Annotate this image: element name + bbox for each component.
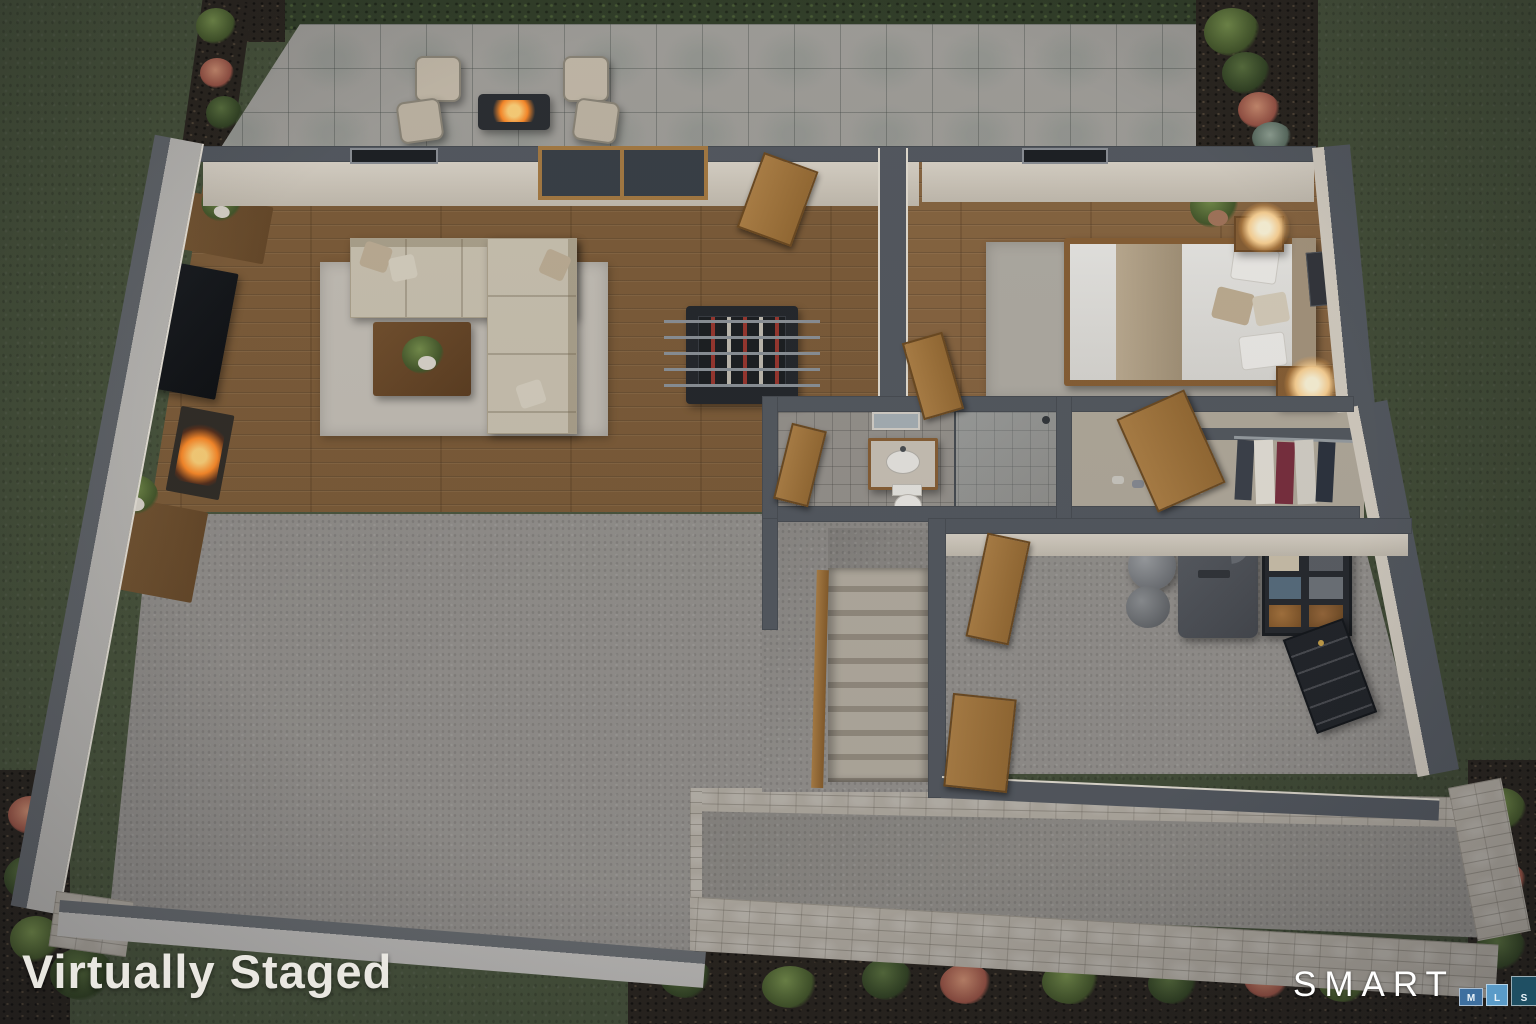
shrub [1222, 52, 1270, 94]
sliding-glass-door [538, 146, 708, 200]
logo-block-m: M [1459, 988, 1483, 1006]
watermark-text: Virtually Staged [22, 944, 392, 999]
patio-lounge-chair [571, 97, 620, 145]
foosball-table [686, 306, 798, 404]
smart-mls-logo: SMART M L S [1293, 962, 1529, 1008]
egress-window [350, 148, 438, 164]
fire-flame [489, 100, 539, 122]
basement-floorplan [50, 140, 1490, 985]
garment-charcoal [1234, 440, 1254, 501]
patio [196, 24, 1196, 152]
wall-north-face-bedroom [922, 162, 1314, 202]
garment-light [1294, 440, 1316, 505]
patio-lounge-chair [563, 56, 609, 102]
wall-bath-west [762, 396, 778, 522]
plant-pot [1208, 210, 1228, 226]
bathroom-mirror [872, 412, 920, 430]
lit-table-lamp [1238, 202, 1290, 254]
wall-utility-north [942, 518, 1412, 534]
virtually-staged-floorplan-render: Virtually Staged SMART M L S [0, 0, 1536, 1024]
patio-lounge-chair [415, 56, 461, 102]
logo-brand-text: SMART [1293, 965, 1455, 1005]
plant-pot [418, 356, 436, 370]
bed-pillow [1238, 331, 1288, 370]
stair-landing [828, 528, 930, 570]
sink [886, 450, 920, 474]
garment-navy [1315, 442, 1335, 503]
wall-utility-south [941, 776, 1439, 821]
storage-bin [1269, 577, 1301, 599]
bed-throw [1116, 244, 1182, 380]
furnace-vent [1198, 570, 1230, 578]
accent-pillow [1252, 291, 1291, 326]
foosball-rod [664, 336, 820, 339]
bed [1064, 238, 1316, 386]
egress-window-bedroom [1022, 148, 1108, 164]
flower-shrub [200, 58, 234, 88]
patio-lounge-chair [395, 97, 444, 145]
shrub [1204, 8, 1260, 56]
paint-can [1269, 605, 1301, 627]
staircase [828, 568, 930, 782]
logo-block-l: L [1486, 984, 1508, 1006]
shoe [1112, 476, 1124, 484]
logo-block-s: S [1511, 976, 1536, 1006]
shoe [1132, 480, 1144, 488]
storage-bin [1309, 577, 1343, 599]
foosball-rod [664, 320, 820, 323]
foosball-field [698, 316, 786, 386]
glass-door-mullion [620, 150, 624, 196]
foosball-rod [664, 368, 820, 371]
garment-maroon [1275, 442, 1295, 505]
wall-stair-east [928, 518, 946, 798]
shower-head [1042, 416, 1050, 424]
shrub [196, 8, 236, 44]
foosball-rod [664, 384, 820, 387]
wall-bedroom-divider [878, 148, 908, 410]
wall-shower-east [1056, 396, 1072, 522]
stair-door-open [943, 693, 1016, 793]
foosball-rod [664, 352, 820, 355]
wall-stair-west [762, 518, 778, 630]
water-heater-base [1126, 586, 1170, 628]
garment-white [1254, 440, 1275, 505]
faucet [900, 446, 906, 452]
